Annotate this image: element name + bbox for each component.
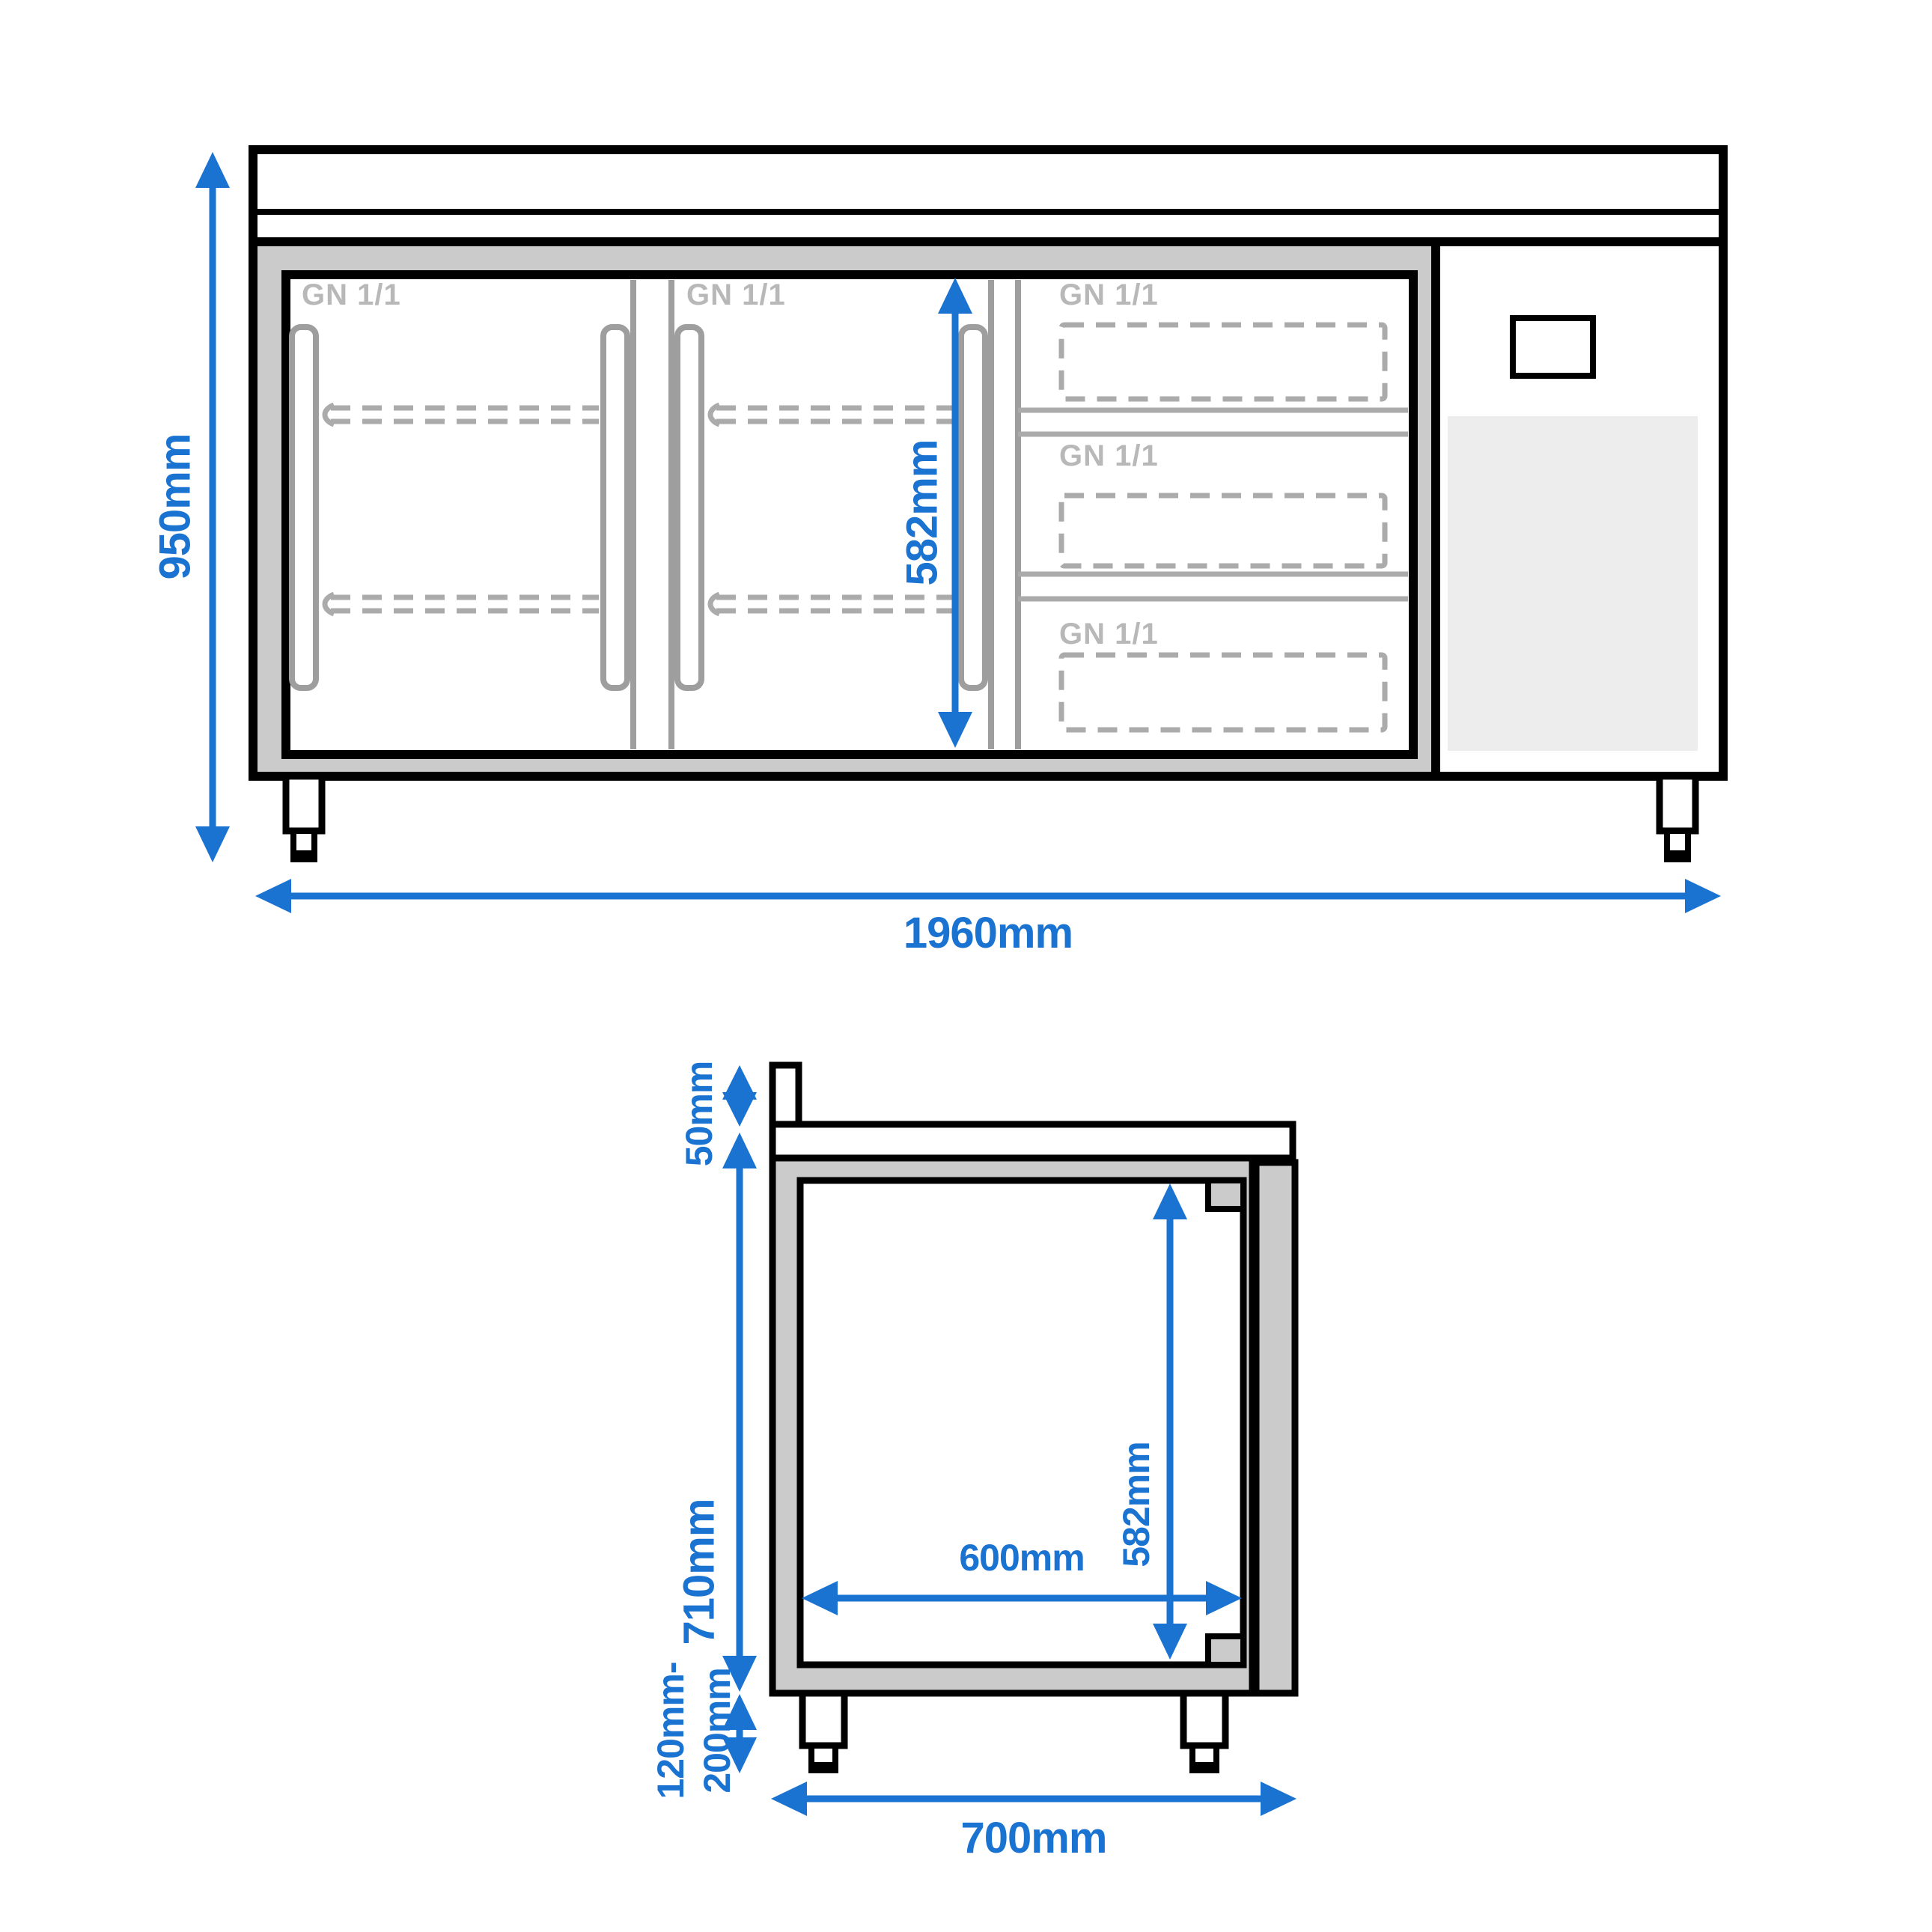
fv-leg-right <box>1660 776 1695 862</box>
sv-dim-depth-arrow-right <box>1261 1782 1296 1816</box>
sv-leg-rear <box>1183 1693 1225 1773</box>
fv-gn-label-drawer1: GN 1/1 <box>1059 278 1159 311</box>
fv-gn-label-door2: GN 1/1 <box>686 278 786 311</box>
sv-dim-depth-arrow-left <box>771 1782 807 1816</box>
fv-leg-left-upper <box>286 776 322 831</box>
fv-control-display <box>1513 318 1593 376</box>
sv-dim-body-height-label: 710mm <box>675 1499 724 1645</box>
sv-leg-rear-upper <box>1183 1693 1225 1746</box>
sv-dim-depth: 700mm <box>771 1782 1296 1862</box>
front-view: GN 1/1 GN 1/1 GN 1/1 GN 1/1 GN 1/1 950mm <box>151 150 1724 957</box>
fv-leg-left-foot <box>293 831 314 853</box>
technical-drawing-page: GN 1/1 GN 1/1 GN 1/1 GN 1/1 GN 1/1 950mm <box>0 0 1932 1932</box>
sv-leg-rear-foot <box>1192 1746 1216 1765</box>
sv-dim-feet-label-line1: 120mm- <box>650 1663 692 1800</box>
sv-worktop <box>773 1124 1293 1158</box>
fv-dim-width-arrow-left <box>255 879 291 913</box>
fv-vent-grille <box>1448 416 1698 751</box>
sv-leg-front-upper <box>802 1693 844 1746</box>
fv-leg-right-base <box>1664 852 1691 862</box>
fv-leg-right-foot <box>1667 831 1688 853</box>
sv-leg-front-base <box>808 1764 838 1773</box>
fv-dim-height-arrow-up <box>195 152 230 188</box>
sv-upstand <box>773 1065 799 1128</box>
fv-gn-label-drawer3: GN 1/1 <box>1059 618 1159 650</box>
sv-door-frame-notch-top <box>1208 1180 1243 1209</box>
sv-dim-upstand-arrow-down <box>722 1092 757 1127</box>
sv-leg-front-foot <box>811 1746 835 1765</box>
fv-dim-height-arrow-down <box>195 826 230 862</box>
fv-leg-left-base <box>290 852 317 862</box>
fv-worktop <box>253 150 1723 242</box>
fv-gn-label-drawer2: GN 1/1 <box>1059 439 1159 472</box>
sv-door <box>1256 1162 1295 1693</box>
fv-dim-height-label: 950mm <box>151 434 200 580</box>
fv-dim-height: 950mm <box>151 152 231 862</box>
fv-gn-label-door1: GN 1/1 <box>302 278 401 311</box>
sv-dim-depth-label: 700mm <box>961 1814 1107 1862</box>
sv-door-frame-notch-bottom <box>1208 1636 1243 1665</box>
sv-leg-rear-base <box>1189 1764 1219 1773</box>
sv-dim-inner-depth-label: 600mm <box>959 1537 1084 1579</box>
fv-interior <box>286 275 1413 755</box>
sv-dim-inner-height-label: 582mm <box>1115 1442 1157 1567</box>
refrigerated-counter-dimension-drawing: GN 1/1 GN 1/1 GN 1/1 GN 1/1 GN 1/1 950mm <box>0 0 1932 1932</box>
fv-dim-width: 1960mm <box>255 879 1721 957</box>
fv-dim-inner-height-label: 582mm <box>898 440 947 586</box>
fv-leg-left <box>286 776 322 862</box>
sv-dim-body-height: 710mm <box>675 1133 758 1692</box>
fv-leg-right-upper <box>1660 776 1695 831</box>
sv-dim-body-height-arrow-up <box>722 1133 757 1168</box>
sv-interior <box>800 1180 1243 1665</box>
sv-dim-upstand-label: 50mm <box>678 1061 720 1167</box>
fv-dim-width-label: 1960mm <box>903 909 1073 957</box>
side-view: 50mm 710mm 582mm 600mm 120mm <box>650 1061 1296 1862</box>
sv-leg-front <box>802 1693 844 1773</box>
fv-dim-width-arrow-right <box>1685 879 1721 913</box>
sv-dim-feet-label-line2: 200mm <box>696 1668 738 1793</box>
